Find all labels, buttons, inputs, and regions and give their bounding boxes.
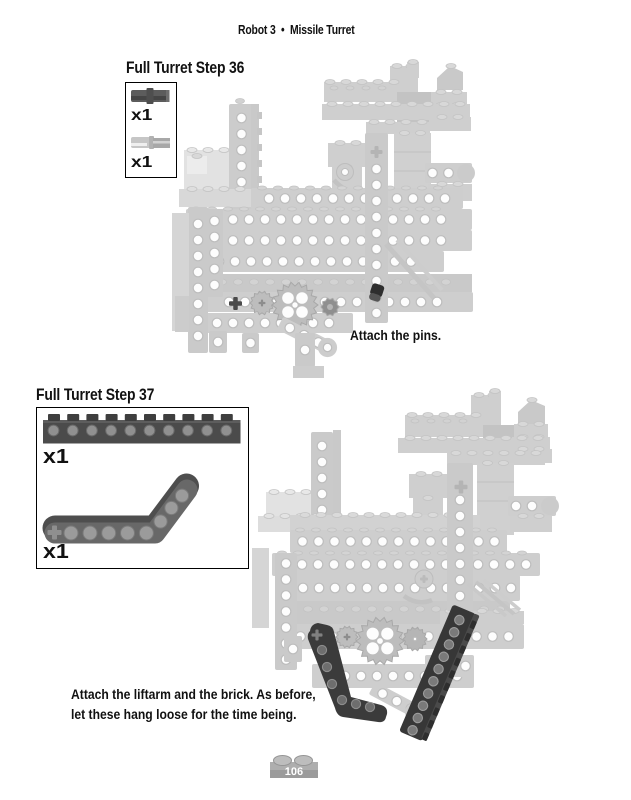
svg-text:106: 106 bbox=[285, 766, 303, 778]
